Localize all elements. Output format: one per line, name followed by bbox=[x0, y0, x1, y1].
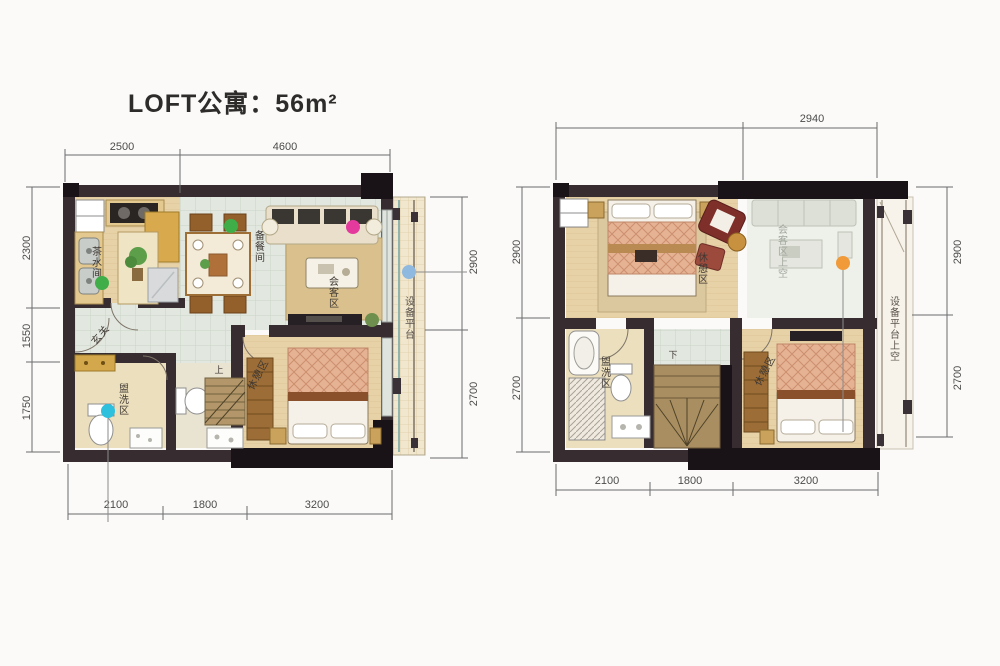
f2-dim-left-2: 2700 bbox=[511, 376, 523, 400]
f1-kitchen-label: 茶水间 bbox=[90, 245, 102, 279]
f1-dim-left-3: 1750 bbox=[21, 396, 33, 420]
f2-dim-right-2: 2700 bbox=[952, 366, 964, 390]
floor2-plan: 设备平台上空 bbox=[511, 113, 964, 496]
f1-dim-bottom-3: 3200 bbox=[305, 499, 329, 511]
f1-bath-label: 盥洗区 bbox=[117, 383, 129, 416]
floorplan-canvas: 设备平台 bbox=[0, 0, 1000, 666]
marker-green-kitchen-dot[interactable] bbox=[95, 276, 109, 290]
f2-bedroom-top-label: 休憩区 bbox=[696, 252, 708, 285]
marker-cyan-bath-dot[interactable] bbox=[101, 404, 115, 418]
f2-stairs-label: 下 bbox=[668, 350, 677, 360]
f2-dim-bottom-3: 3200 bbox=[794, 475, 818, 487]
f2-dim-left-1: 2900 bbox=[511, 240, 523, 264]
f2-bath-label: 盥洗区 bbox=[599, 356, 611, 389]
f1-dining-label: 备餐间 bbox=[253, 229, 265, 263]
f1-dim-bottom-1: 2100 bbox=[104, 499, 128, 511]
f1-dim-left-2: 1550 bbox=[21, 324, 33, 348]
f1-dim-right-2: 2700 bbox=[468, 382, 480, 406]
f1-dim-top-1: 2500 bbox=[110, 141, 134, 153]
f2-windows bbox=[560, 199, 588, 227]
f2-dim-right-1: 2900 bbox=[952, 240, 964, 264]
f1-equipment-platform: 设备平台 bbox=[392, 197, 425, 455]
marker-orange-void-dot[interactable] bbox=[836, 256, 850, 270]
f1-dim-top-2: 4600 bbox=[273, 141, 297, 153]
floor1-plan: 设备平台 bbox=[21, 141, 480, 520]
f1-stairs-label: 上 bbox=[214, 365, 223, 375]
f2-stairs: 下 bbox=[654, 350, 720, 448]
f1-dim-bottom-2: 1800 bbox=[193, 499, 217, 511]
f2-platform-void: 设备平台上空 bbox=[877, 197, 913, 449]
marker-blue-platform-dot[interactable] bbox=[402, 265, 416, 279]
f1-living-label: 会客区 bbox=[327, 275, 339, 309]
floorplan-page: LOFT公寓：56m² bbox=[0, 0, 1000, 666]
f2-dim-bottom-2: 1800 bbox=[678, 475, 702, 487]
f2-living-void-label: 会客区上空 bbox=[776, 223, 788, 279]
f2-platform-label: 设备平台上空 bbox=[888, 296, 900, 362]
f1-dim-left-1: 2300 bbox=[21, 236, 33, 260]
f2-dim-top-1: 2940 bbox=[800, 113, 824, 125]
f1-dim-right-1: 2900 bbox=[468, 250, 480, 274]
f1-platform-label: 设备平台 bbox=[403, 296, 415, 340]
marker-green-dining-dot[interactable] bbox=[224, 219, 238, 233]
f2-dim-bottom-1: 2100 bbox=[595, 475, 619, 487]
marker-pink-sofa-dot[interactable] bbox=[346, 220, 360, 234]
